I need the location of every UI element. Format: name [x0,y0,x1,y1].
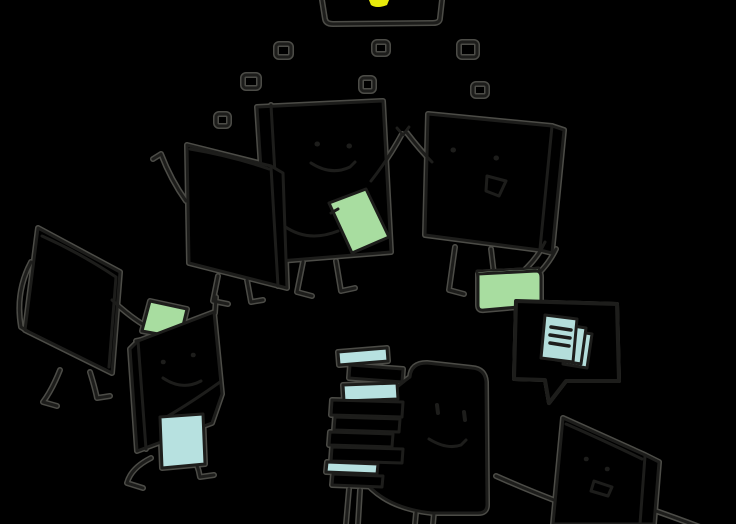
books-illustration [0,0,736,524]
illustration-canvas [0,0,736,524]
